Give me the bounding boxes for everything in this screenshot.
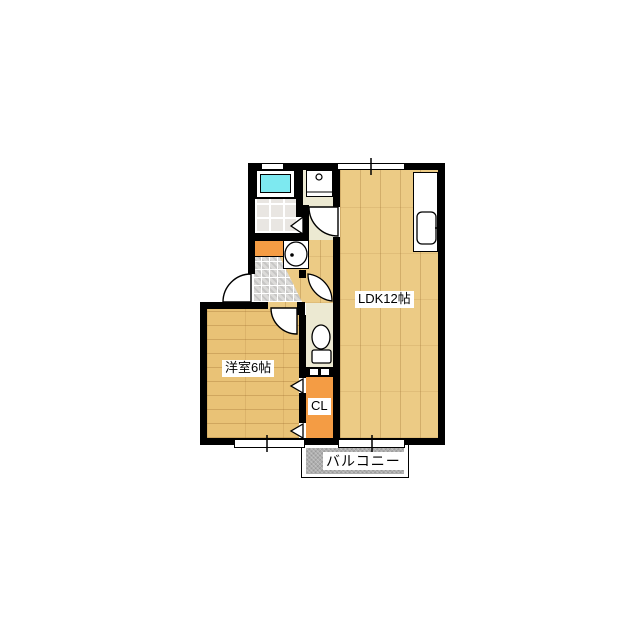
washroom-door-swing bbox=[309, 207, 338, 236]
floor-plan: LDK12帖 洋室6帖 CL バルコニー bbox=[0, 0, 640, 640]
closet-door-icon bbox=[291, 424, 303, 438]
washbasin-drain bbox=[290, 253, 294, 257]
toilet-door-swing bbox=[308, 274, 332, 301]
toilet-bowl bbox=[312, 325, 330, 349]
sink-faucet bbox=[316, 174, 322, 180]
bathroom-door-icon bbox=[291, 217, 303, 234]
closet-label: CL bbox=[308, 398, 331, 415]
ldk-label: LDK12帖 bbox=[355, 291, 414, 308]
western-room-door-swing bbox=[271, 308, 297, 334]
closet-door-icon bbox=[291, 379, 303, 393]
toilet-tank bbox=[312, 350, 331, 363]
room-label: 洋室6帖 bbox=[222, 360, 274, 377]
balcony-label: バルコニー bbox=[323, 452, 404, 470]
entrance-door-swing bbox=[223, 274, 251, 302]
plan-symbols bbox=[0, 0, 640, 640]
washbasin-bowl bbox=[285, 242, 307, 266]
kitchen-sink bbox=[417, 212, 436, 244]
